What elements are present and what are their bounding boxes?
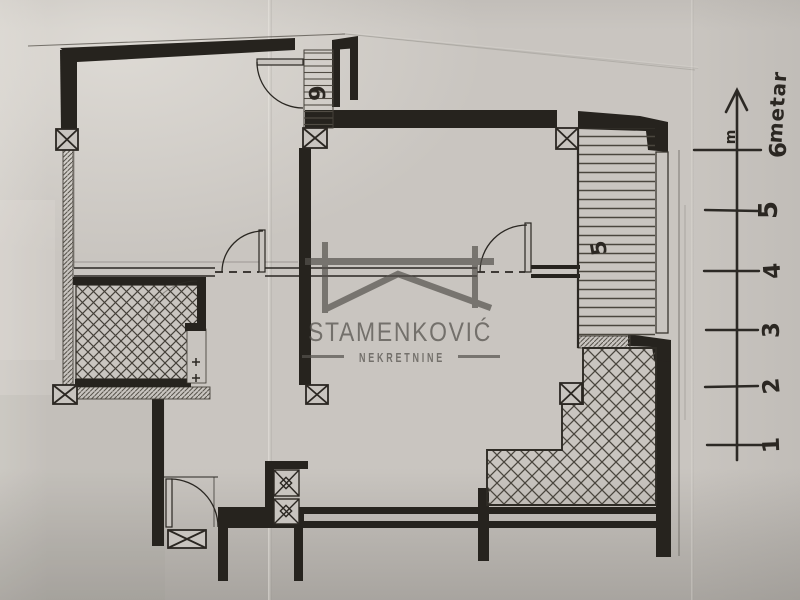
bathroom-strip-cap: [185, 323, 206, 331]
wall-left-thin: [63, 150, 73, 385]
entry-steps-label: 9: [305, 84, 331, 101]
scale-ruler: 1 2 3 4 5 6 m metar: [694, 70, 792, 460]
terrace: [487, 348, 656, 505]
column-symbol: [306, 385, 328, 404]
terrace-paved-floor: [487, 348, 656, 505]
wall-right: [656, 340, 671, 557]
wall-entry-left: [152, 399, 164, 546]
vent-shaft-icon: [274, 499, 299, 524]
column-symbol: [560, 383, 582, 404]
watermark: STAMENKOVIĆ NEKRETNINE: [302, 242, 500, 365]
watermark-dash-left: [302, 355, 344, 358]
column-symbol: [56, 129, 78, 150]
wall-left-upper: [60, 48, 77, 131]
floor-plan-photo: 9 5 1 2 3 4 5 6 m metar: [0, 0, 800, 600]
door-arc: [222, 231, 263, 272]
loggia-decking: [579, 128, 655, 336]
wall-stub-2: [294, 521, 303, 581]
floor-plan-drawing: 9 5 1 2 3 4 5 6 m metar: [0, 0, 800, 600]
loggia: [579, 128, 668, 336]
column-symbol: [303, 128, 327, 148]
ruler-unit-abbr: m: [723, 130, 739, 145]
door-arc: [171, 479, 218, 527]
wall-under-loggia: [578, 336, 630, 348]
bathroom: [73, 277, 206, 387]
column-symbol: [556, 128, 578, 149]
ruler-tick-label-3: 3: [759, 322, 785, 338]
wall-livingroom-top: [305, 110, 557, 128]
door-bottom-entry: [164, 477, 218, 527]
watermark-brand-text: STAMENKOVIĆ: [308, 316, 492, 347]
ruler-unit-label: metar: [763, 70, 792, 144]
vent-shaft-icon: [274, 470, 299, 496]
ruler-tick-label-5: 5: [754, 201, 784, 219]
column-symbol: [53, 385, 77, 404]
ruler-tick-label-2: 2: [758, 377, 786, 396]
entry-niche-right: [350, 46, 358, 100]
ruler-tick-label-4: 4: [759, 262, 786, 280]
door-arc: [257, 62, 303, 108]
bathroom-tiled-floor: [76, 285, 198, 379]
watermark-tagline-text: NEKRETNINE: [359, 350, 445, 365]
loggia-window-strip: [656, 152, 668, 333]
bathroom-wall-right: [197, 277, 206, 330]
column-symbol: [168, 530, 206, 548]
watermark-dash-right: [458, 355, 500, 358]
door-top-entry: [257, 59, 303, 108]
wall-central: [299, 148, 311, 385]
watermark-logo-icon: [305, 242, 494, 313]
door-bedroom: [222, 230, 265, 272]
wall-bath-bottom: [70, 387, 210, 399]
wall-stub-1: [218, 507, 228, 581]
ruler-tick-label-1: 1: [759, 437, 786, 454]
bathroom-wall-bottom: [75, 379, 191, 387]
bathroom-wall-top: [73, 277, 206, 285]
